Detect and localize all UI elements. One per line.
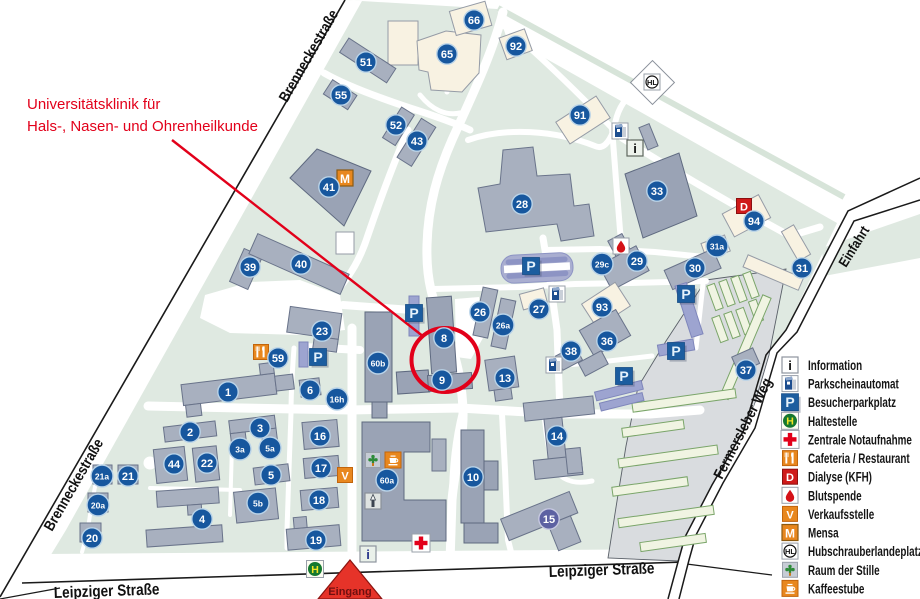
svg-text:i: i (633, 141, 637, 156)
svg-text:Hals-, Nasen- und Ohrenheilkun: Hals-, Nasen- und Ohrenheilkunde (27, 118, 258, 135)
svg-text:26: 26 (474, 307, 486, 319)
svg-text:Hubschrauberlandeplatz: Hubschrauberlandeplatz (808, 544, 920, 560)
svg-text:Leipziger Straße: Leipziger Straße (549, 560, 655, 581)
svg-text:Haltestelle: Haltestelle (808, 413, 858, 429)
svg-text:28: 28 (516, 199, 528, 211)
svg-text:13: 13 (499, 373, 511, 385)
svg-text:21: 21 (122, 471, 134, 483)
svg-text:94: 94 (748, 216, 761, 228)
svg-text:Blutspende: Blutspende (808, 488, 862, 504)
svg-text:40: 40 (295, 259, 307, 271)
svg-text:Cafeteria / Restaurant: Cafeteria / Restaurant (808, 451, 910, 467)
svg-text:5: 5 (268, 470, 274, 482)
svg-text:65: 65 (441, 49, 453, 61)
svg-text:Besucherparkplatz: Besucherparkplatz (808, 395, 896, 411)
svg-text:29c: 29c (595, 260, 609, 270)
svg-text:Eingang: Eingang (328, 586, 371, 598)
svg-text:38: 38 (565, 346, 577, 358)
svg-text:52: 52 (390, 120, 402, 132)
svg-text:36: 36 (601, 336, 613, 348)
svg-text:59: 59 (272, 353, 284, 365)
svg-text:30: 30 (689, 263, 701, 275)
svg-text:41: 41 (323, 182, 335, 194)
svg-text:15: 15 (543, 514, 555, 526)
svg-text:2: 2 (187, 427, 193, 439)
svg-text:91: 91 (574, 110, 586, 122)
svg-text:4: 4 (199, 514, 206, 526)
svg-text:5a: 5a (265, 444, 275, 454)
svg-text:44: 44 (168, 459, 181, 471)
svg-text:10: 10 (467, 472, 479, 484)
svg-text:i: i (366, 547, 370, 562)
svg-text:Information: Information (808, 357, 862, 373)
svg-text:5b: 5b (253, 499, 263, 509)
svg-text:Leipziger Straße: Leipziger Straße (54, 581, 160, 599)
svg-text:3a: 3a (235, 445, 245, 455)
svg-text:31a: 31a (710, 242, 724, 252)
svg-text:Kaffeestube: Kaffeestube (808, 581, 865, 597)
svg-text:27: 27 (533, 304, 545, 316)
svg-text:93: 93 (596, 302, 608, 314)
svg-text:16h: 16h (330, 395, 345, 405)
svg-text:Raum der Stille: Raum der Stille (808, 562, 880, 578)
svg-text:26a: 26a (496, 321, 510, 331)
svg-text:33: 33 (651, 186, 663, 198)
svg-text:43: 43 (411, 136, 423, 148)
svg-text:Parkscheinautomat: Parkscheinautomat (808, 376, 899, 392)
svg-text:1: 1 (225, 387, 231, 399)
svg-text:Mensa: Mensa (808, 525, 839, 541)
svg-text:17: 17 (315, 463, 327, 475)
svg-text:92: 92 (510, 41, 522, 53)
svg-text:8: 8 (441, 333, 447, 345)
svg-text:18: 18 (313, 495, 325, 507)
svg-text:60b: 60b (371, 359, 386, 369)
svg-text:19: 19 (310, 535, 322, 547)
svg-text:22: 22 (201, 458, 213, 470)
svg-text:39: 39 (244, 262, 256, 274)
svg-text:37: 37 (740, 365, 752, 377)
svg-text:6: 6 (307, 385, 313, 397)
svg-text:55: 55 (335, 90, 347, 102)
svg-text:9: 9 (439, 375, 445, 387)
svg-text:23: 23 (316, 326, 328, 338)
svg-text:Verkaufsstelle: Verkaufsstelle (808, 506, 875, 522)
svg-text:20: 20 (86, 533, 98, 545)
svg-text:14: 14 (551, 431, 564, 443)
svg-text:16: 16 (314, 431, 326, 443)
svg-text:21a: 21a (95, 472, 109, 482)
svg-text:51: 51 (360, 57, 372, 69)
svg-text:20a: 20a (91, 501, 105, 511)
svg-text:Dialyse (KFH): Dialyse (KFH) (808, 469, 872, 485)
svg-text:31: 31 (796, 263, 808, 275)
svg-text:29: 29 (631, 256, 643, 268)
svg-text:Universitätsklinik für: Universitätsklinik für (27, 96, 160, 113)
svg-text:60a: 60a (380, 476, 394, 486)
svg-text:Zentrale Notaufnahme: Zentrale Notaufnahme (808, 432, 912, 448)
svg-text:66: 66 (468, 15, 480, 27)
svg-text:3: 3 (257, 423, 263, 435)
